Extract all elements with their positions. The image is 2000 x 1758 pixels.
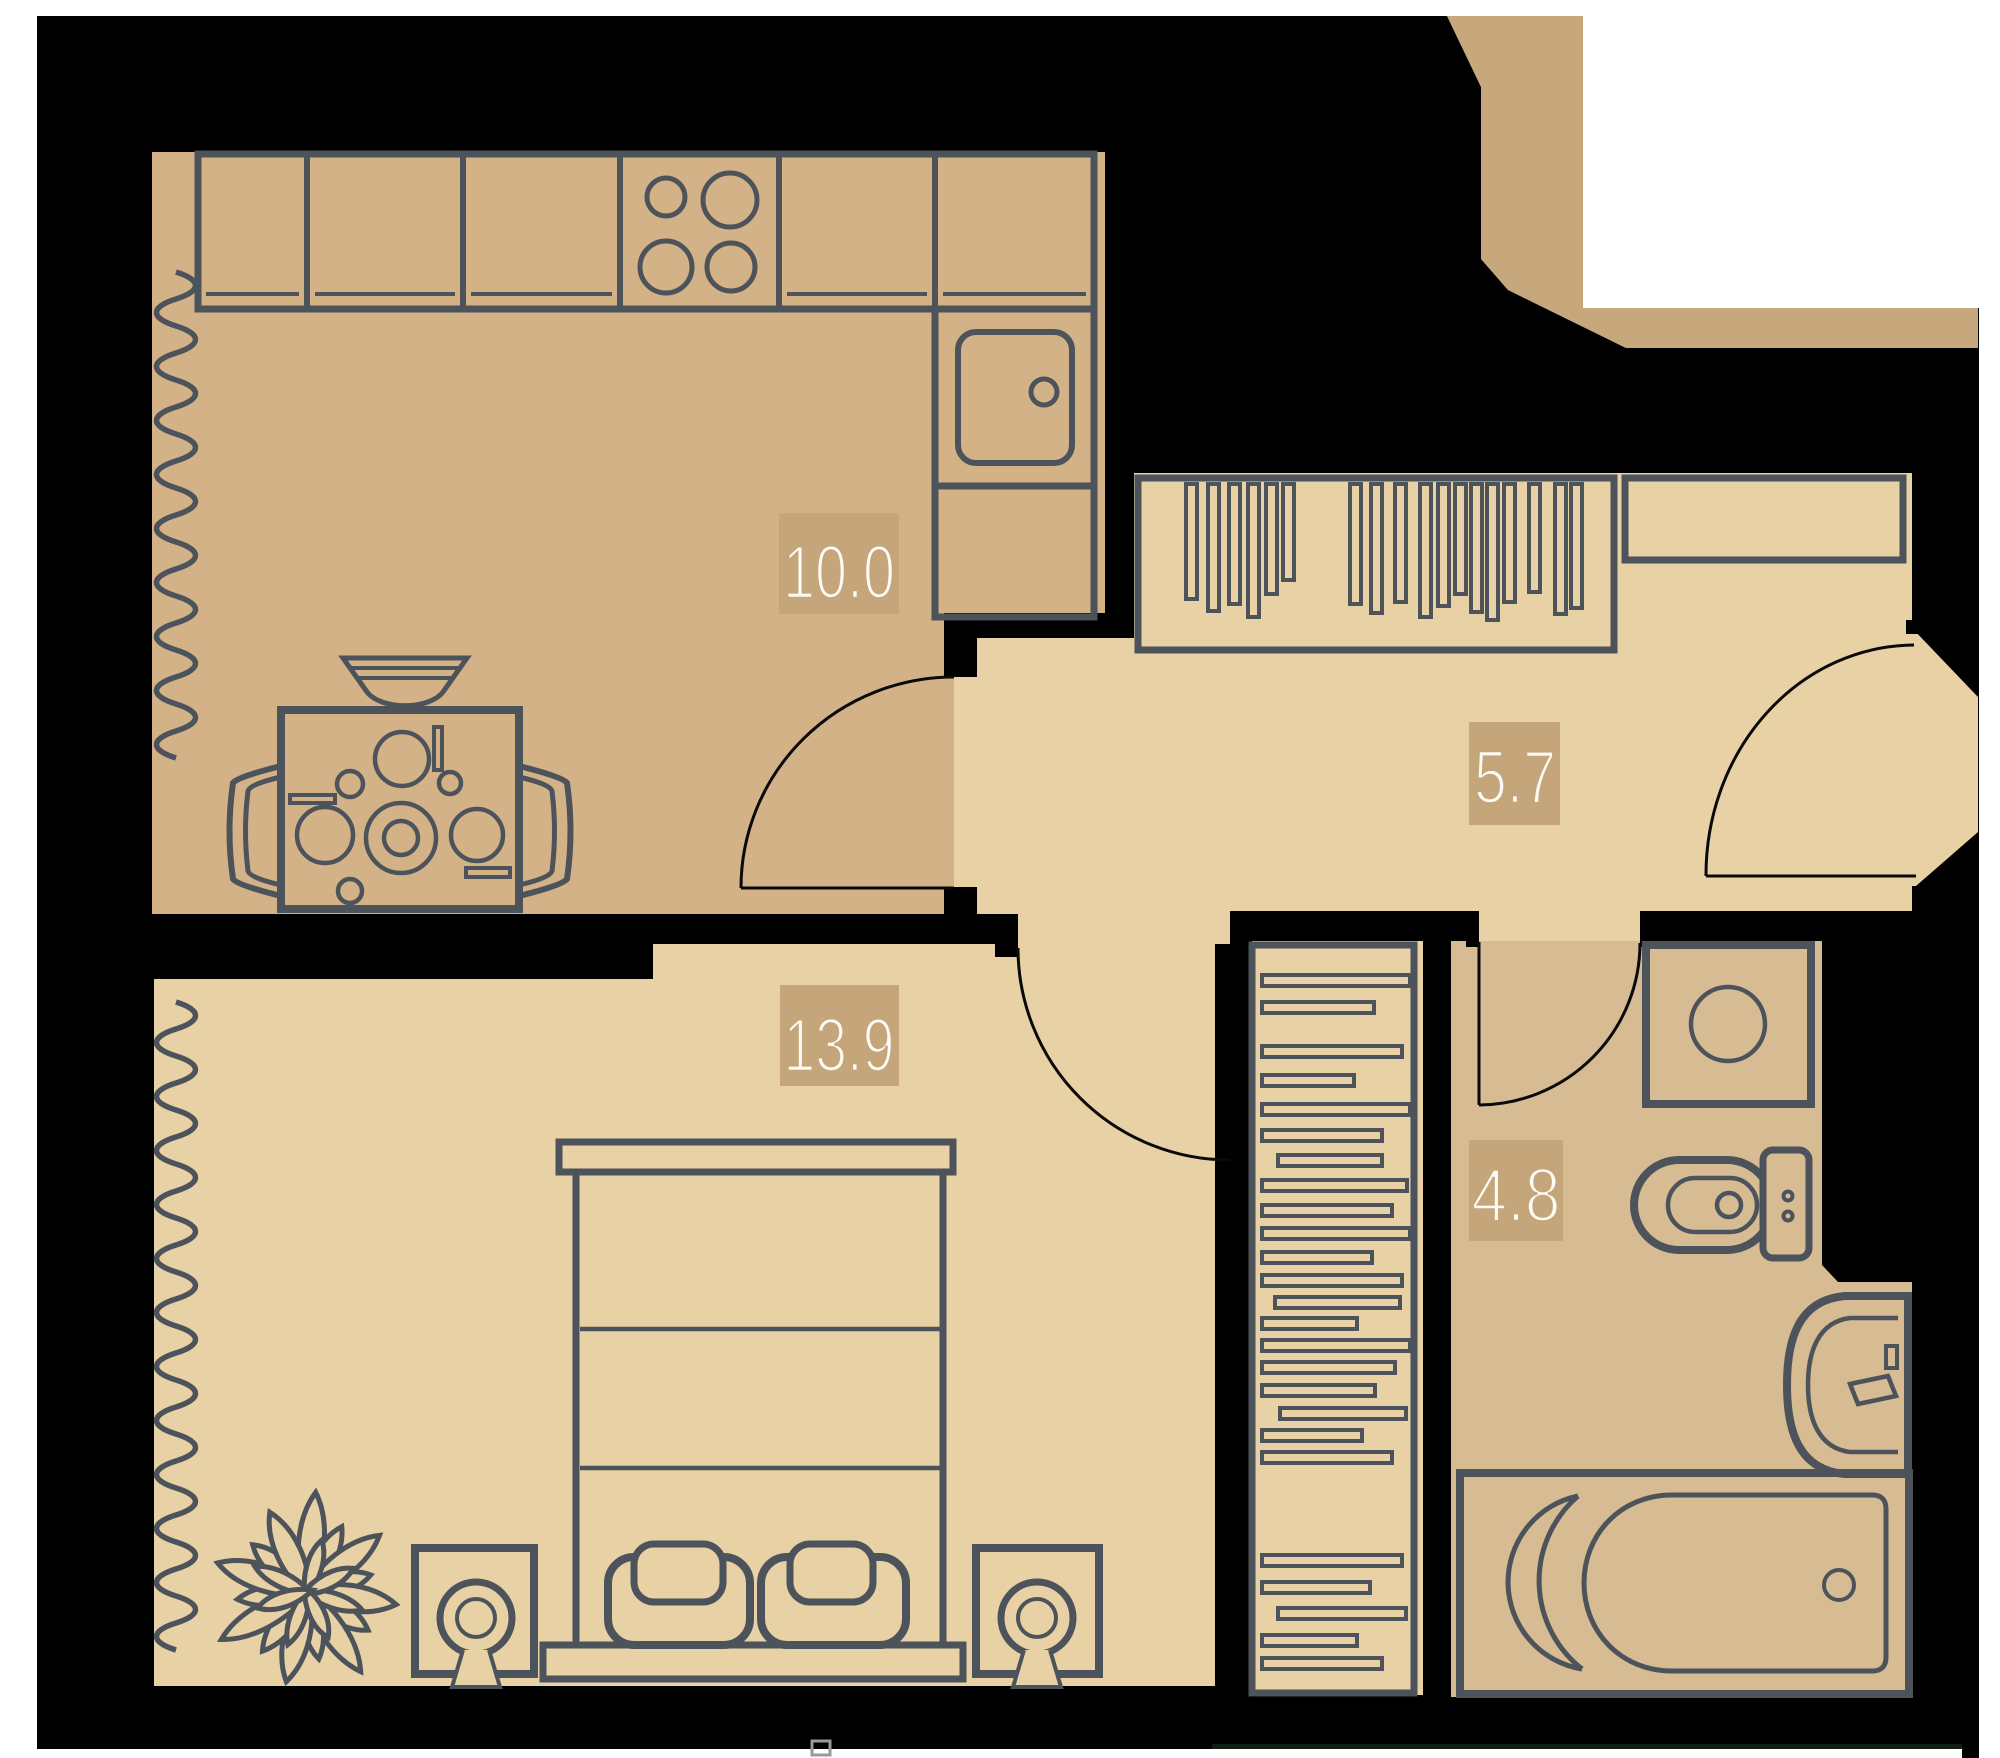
svg-text:10.0: 10.0 [783, 530, 895, 614]
svg-text:4.8: 4.8 [1472, 1153, 1561, 1237]
svg-text:5.7: 5.7 [1474, 735, 1556, 819]
svg-text:13.9: 13.9 [784, 1003, 895, 1087]
